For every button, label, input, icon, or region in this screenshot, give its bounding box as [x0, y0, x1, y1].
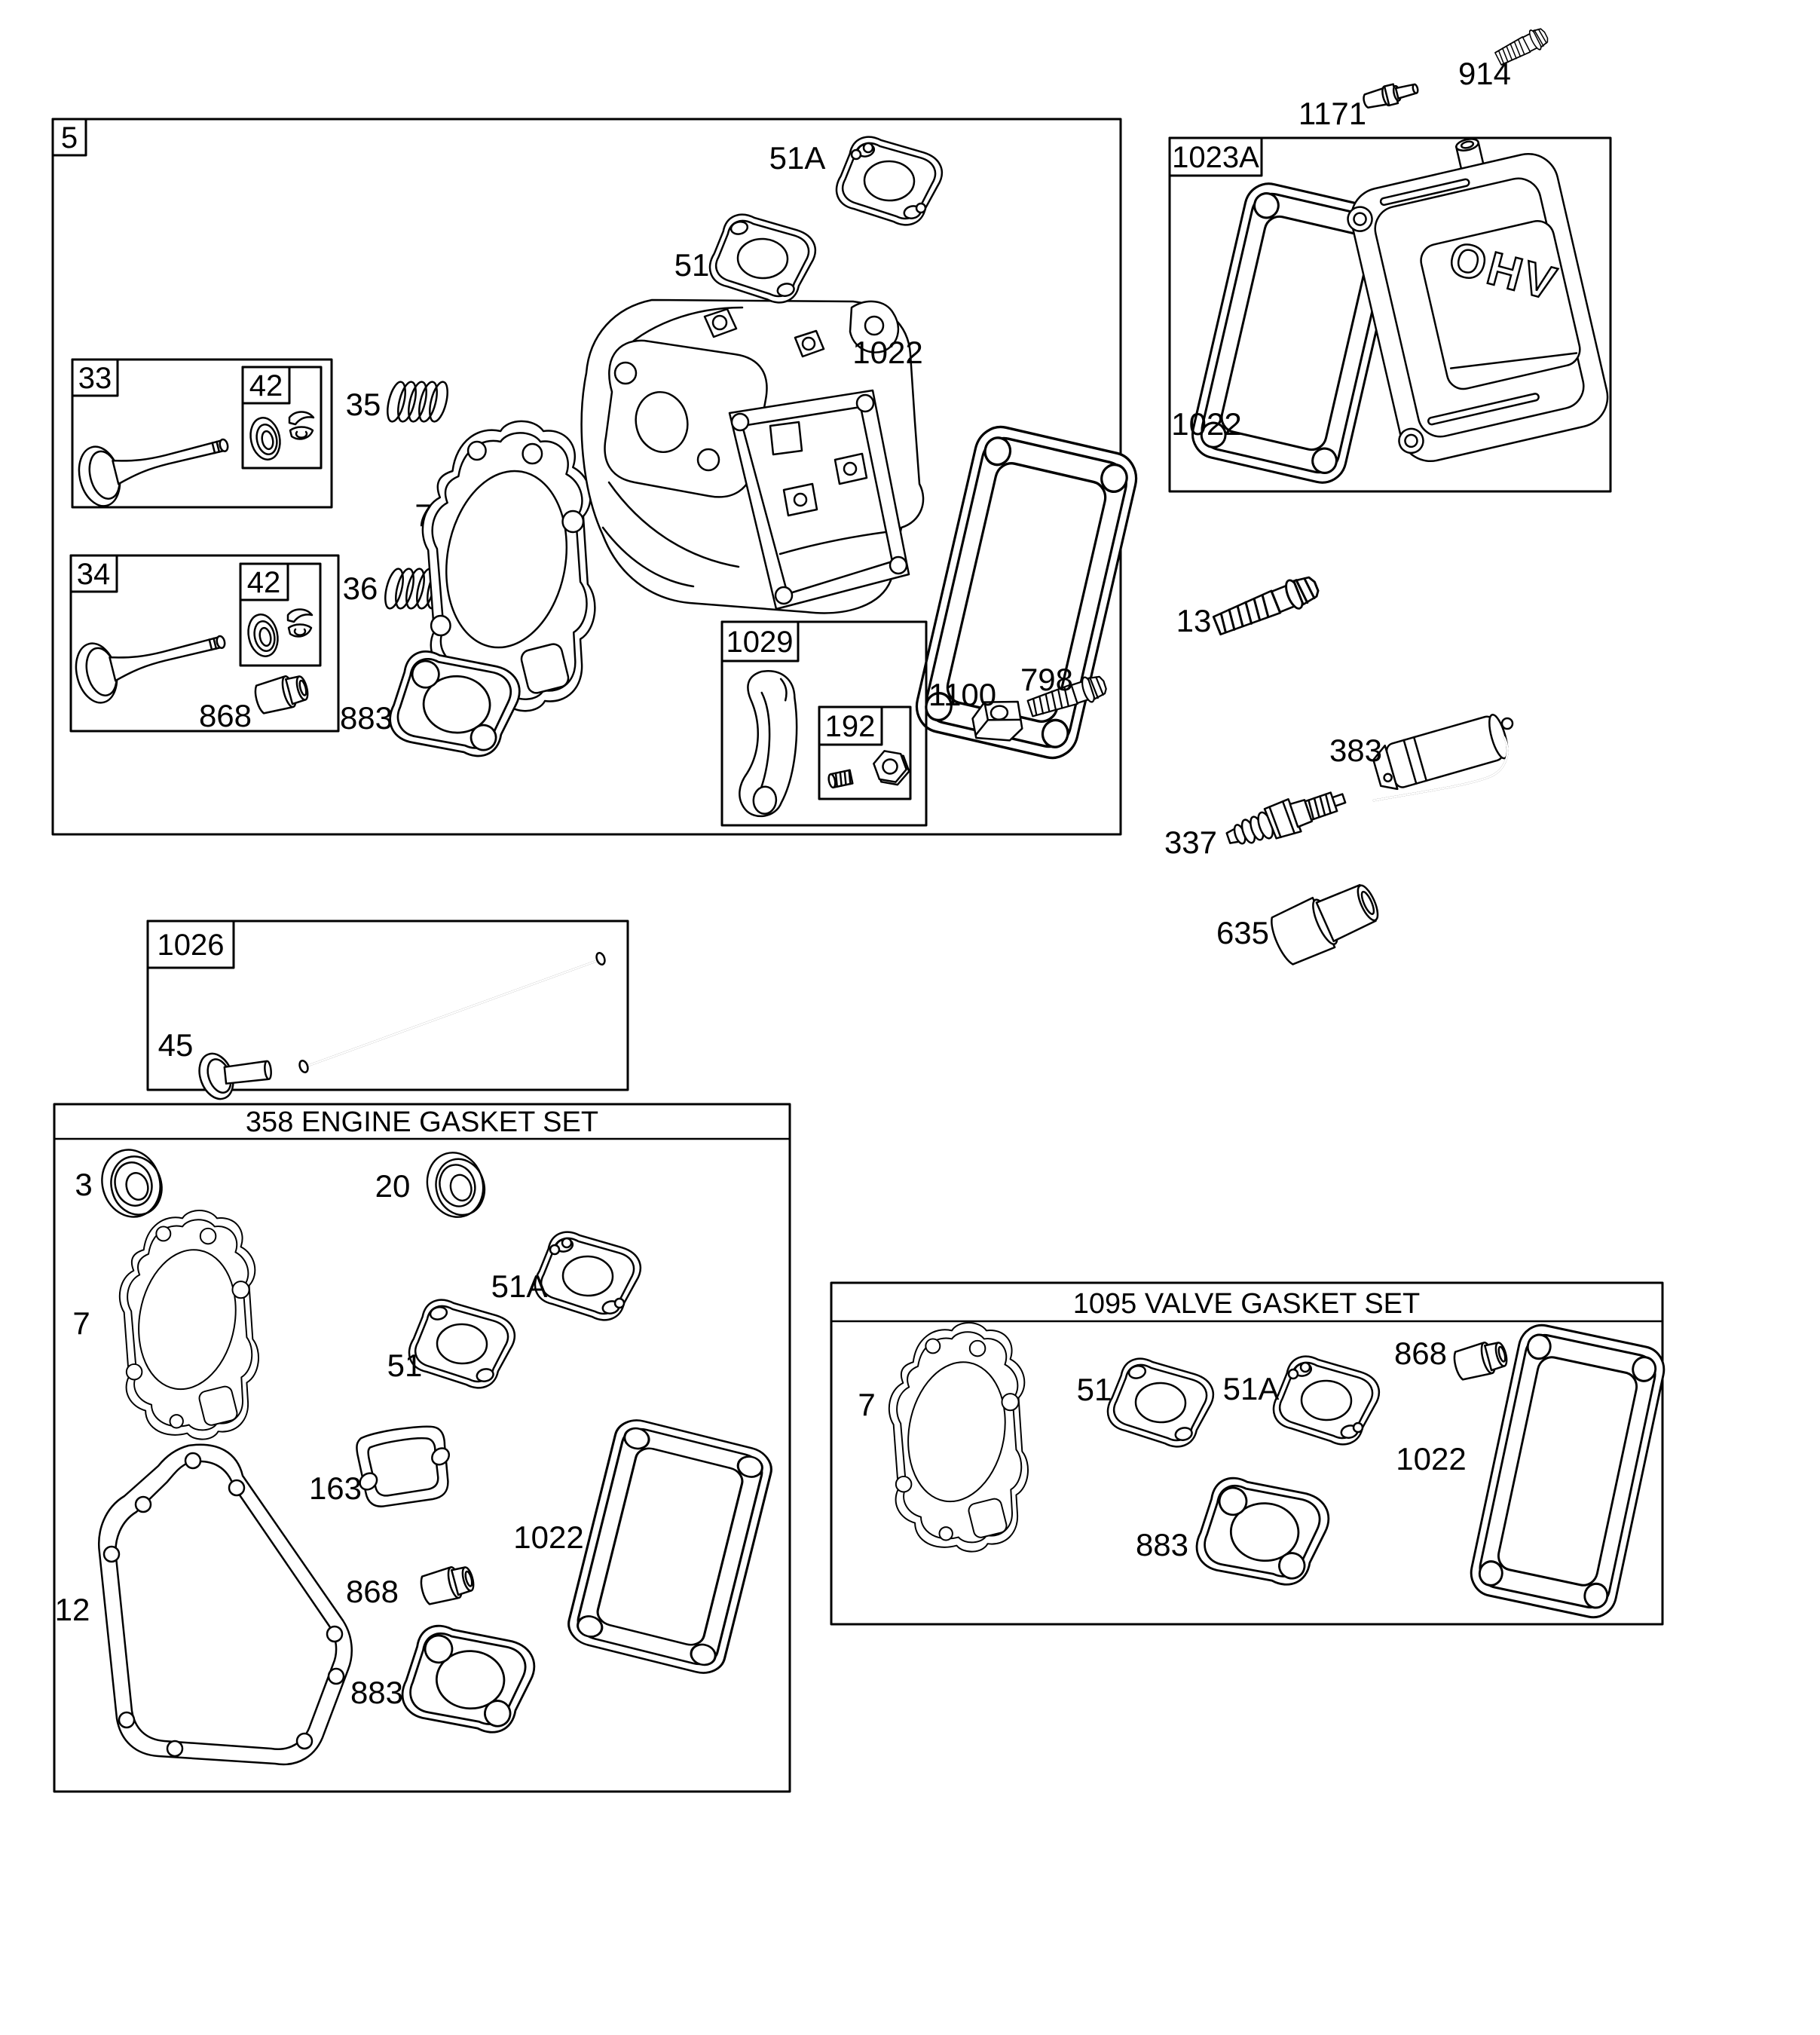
valve-cover: OHV [1336, 121, 1614, 467]
rocker-nut [871, 749, 912, 786]
head-assembly-ref: 5 [61, 121, 78, 155]
head-bolt [1212, 571, 1322, 639]
callout-1171: 1171 [1298, 96, 1366, 131]
callout-51a-358: 51A [491, 1268, 548, 1304]
rocker-hardware-ref: 192 [825, 710, 876, 743]
engine-gasket-set-title: 358 ENGINE GASKET SET [246, 1106, 598, 1138]
breather-valve [1362, 78, 1420, 111]
head-gasket-358 [120, 1210, 258, 1440]
callout-163: 163 [309, 1470, 362, 1506]
valve-gasket-set-box: 1095 VALVE GASKET SET [831, 1283, 1669, 1624]
callout-7-1095: 7 [858, 1387, 875, 1422]
intake-gasket-358 [349, 1421, 459, 1512]
rocker-box-ref: 1029 [726, 626, 794, 659]
intake-valve-box: 33 42 [72, 360, 332, 510]
rocker-arm [738, 669, 801, 818]
exhaust-valve [70, 612, 231, 707]
intake-seal-kit-ref: 42 [249, 369, 283, 402]
callout-12: 12 [55, 1592, 90, 1627]
callout-51a-1095: 51A [1223, 1371, 1280, 1406]
valve-guide-seal [252, 672, 310, 715]
exhaust-seal-kit-ref: 42 [247, 566, 281, 599]
diagram-canvas: 5 33 42 34 42 [0, 0, 1820, 2035]
carb-gasket-51a-1095 [1268, 1346, 1384, 1455]
callout-13: 13 [1176, 603, 1212, 638]
exhaust-valve-retainer [288, 610, 312, 637]
exhaust-gasket-1095 [1191, 1466, 1335, 1599]
callout-1022-1095: 1022 [1396, 1441, 1466, 1477]
callout-337: 337 [1164, 825, 1217, 860]
magneto-seal [94, 1143, 168, 1223]
valve-guide-seal-358 [418, 1562, 476, 1606]
callout-868-358: 868 [346, 1574, 399, 1609]
callout-383: 383 [1329, 733, 1382, 768]
pushrod-group-ref: 1026 [158, 929, 225, 962]
valve-cover-group-ref: 1023A [1172, 141, 1259, 174]
callout-868-head: 868 [199, 698, 252, 733]
rocker-set-screw [827, 770, 852, 788]
callout-883-1095: 883 [1136, 1527, 1188, 1562]
callout-3: 3 [75, 1167, 92, 1202]
parts-diagram-page: 5 33 42 34 42 [0, 0, 1820, 2035]
callout-7-358: 7 [72, 1305, 90, 1341]
carb-gasket-51 [704, 204, 821, 313]
callout-883-head: 883 [340, 700, 393, 736]
callout-635: 635 [1216, 915, 1269, 950]
valve-gasket-set-title: 1095 VALVE GASKET SET [1073, 1288, 1420, 1320]
callout-7-head: 7 [414, 497, 432, 533]
intake-valve-ref: 33 [78, 362, 112, 395]
callout-51a-head: 51A [769, 140, 826, 176]
exhaust-valve-seal [245, 612, 282, 659]
callout-20: 20 [375, 1168, 411, 1204]
callout-51-358: 51 [387, 1348, 423, 1383]
callout-1100: 1100 [928, 677, 996, 712]
intake-valve-spring [384, 380, 451, 423]
pto-seal [420, 1146, 491, 1223]
spark-plug [1223, 782, 1350, 855]
exhaust-gasket-358 [396, 1614, 541, 1746]
exhaust-valve-ref: 34 [77, 558, 111, 591]
valve-guide-seal-1095 [1451, 1338, 1510, 1382]
spark-plug-boot [1266, 875, 1385, 968]
intake-valve [73, 415, 234, 510]
callout-883-358: 883 [350, 1675, 403, 1710]
callout-51-head: 51 [674, 247, 710, 283]
callout-45: 45 [158, 1027, 194, 1063]
valve-cover-gasket-358 [564, 1415, 775, 1678]
valve-cover-box: 1023A OHV 1022 [1170, 121, 1614, 491]
callout-35: 35 [346, 387, 381, 422]
valve-cover-gasket-label: 1022 [1171, 406, 1241, 442]
engine-gasket-set-box: 358 ENGINE GASKET SET [54, 1104, 790, 1792]
callout-1022-head: 1022 [852, 335, 922, 370]
carb-gasket-51a [830, 127, 947, 235]
head-gasket-1095 [889, 1323, 1028, 1552]
carb-gasket-51-1095 [1102, 1348, 1219, 1457]
callout-1022-358: 1022 [513, 1519, 583, 1555]
intake-valve-retainer [289, 412, 314, 439]
tappet [193, 1044, 274, 1104]
callout-36: 36 [343, 571, 378, 606]
callout-868-1095: 868 [1394, 1336, 1447, 1371]
pushrod-box: 1026 [148, 921, 628, 1105]
rocker-box: 1029 192 [722, 622, 926, 825]
callout-914: 914 [1458, 56, 1511, 91]
push-rod [298, 952, 607, 1073]
breather-tube [1371, 713, 1513, 800]
callout-51-1095: 51 [1077, 1372, 1112, 1407]
intake-valve-seal [247, 415, 284, 463]
callout-798: 798 [1020, 662, 1073, 697]
